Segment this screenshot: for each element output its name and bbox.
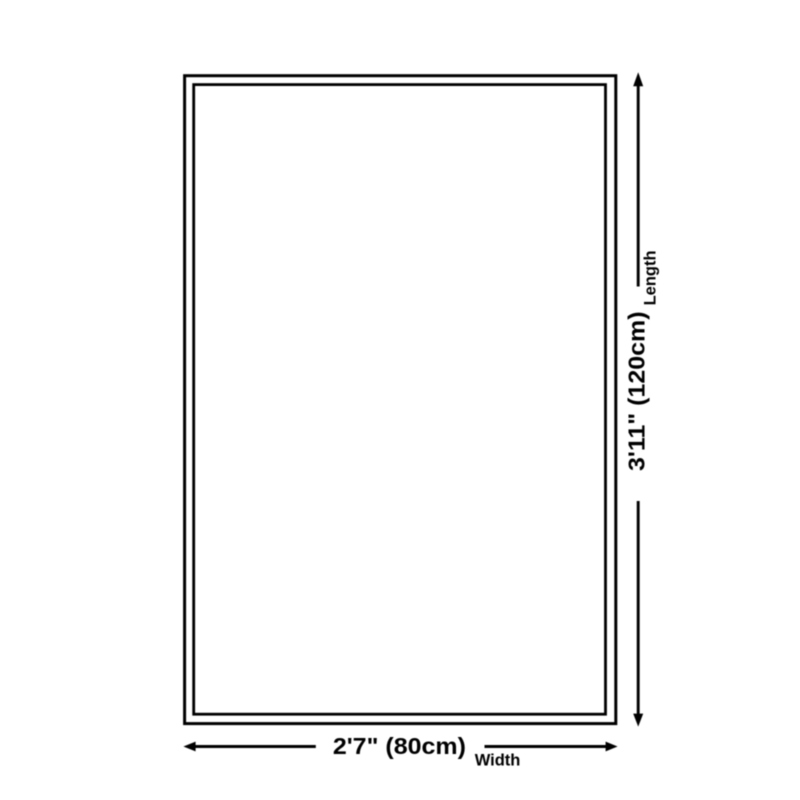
svg-text:Length: Length [642, 250, 660, 305]
svg-text:2'7" (80cm): 2'7" (80cm) [333, 734, 466, 760]
svg-text:Width: Width [475, 752, 521, 770]
svg-text:3'11" (120cm): 3'11" (120cm) [624, 311, 650, 471]
